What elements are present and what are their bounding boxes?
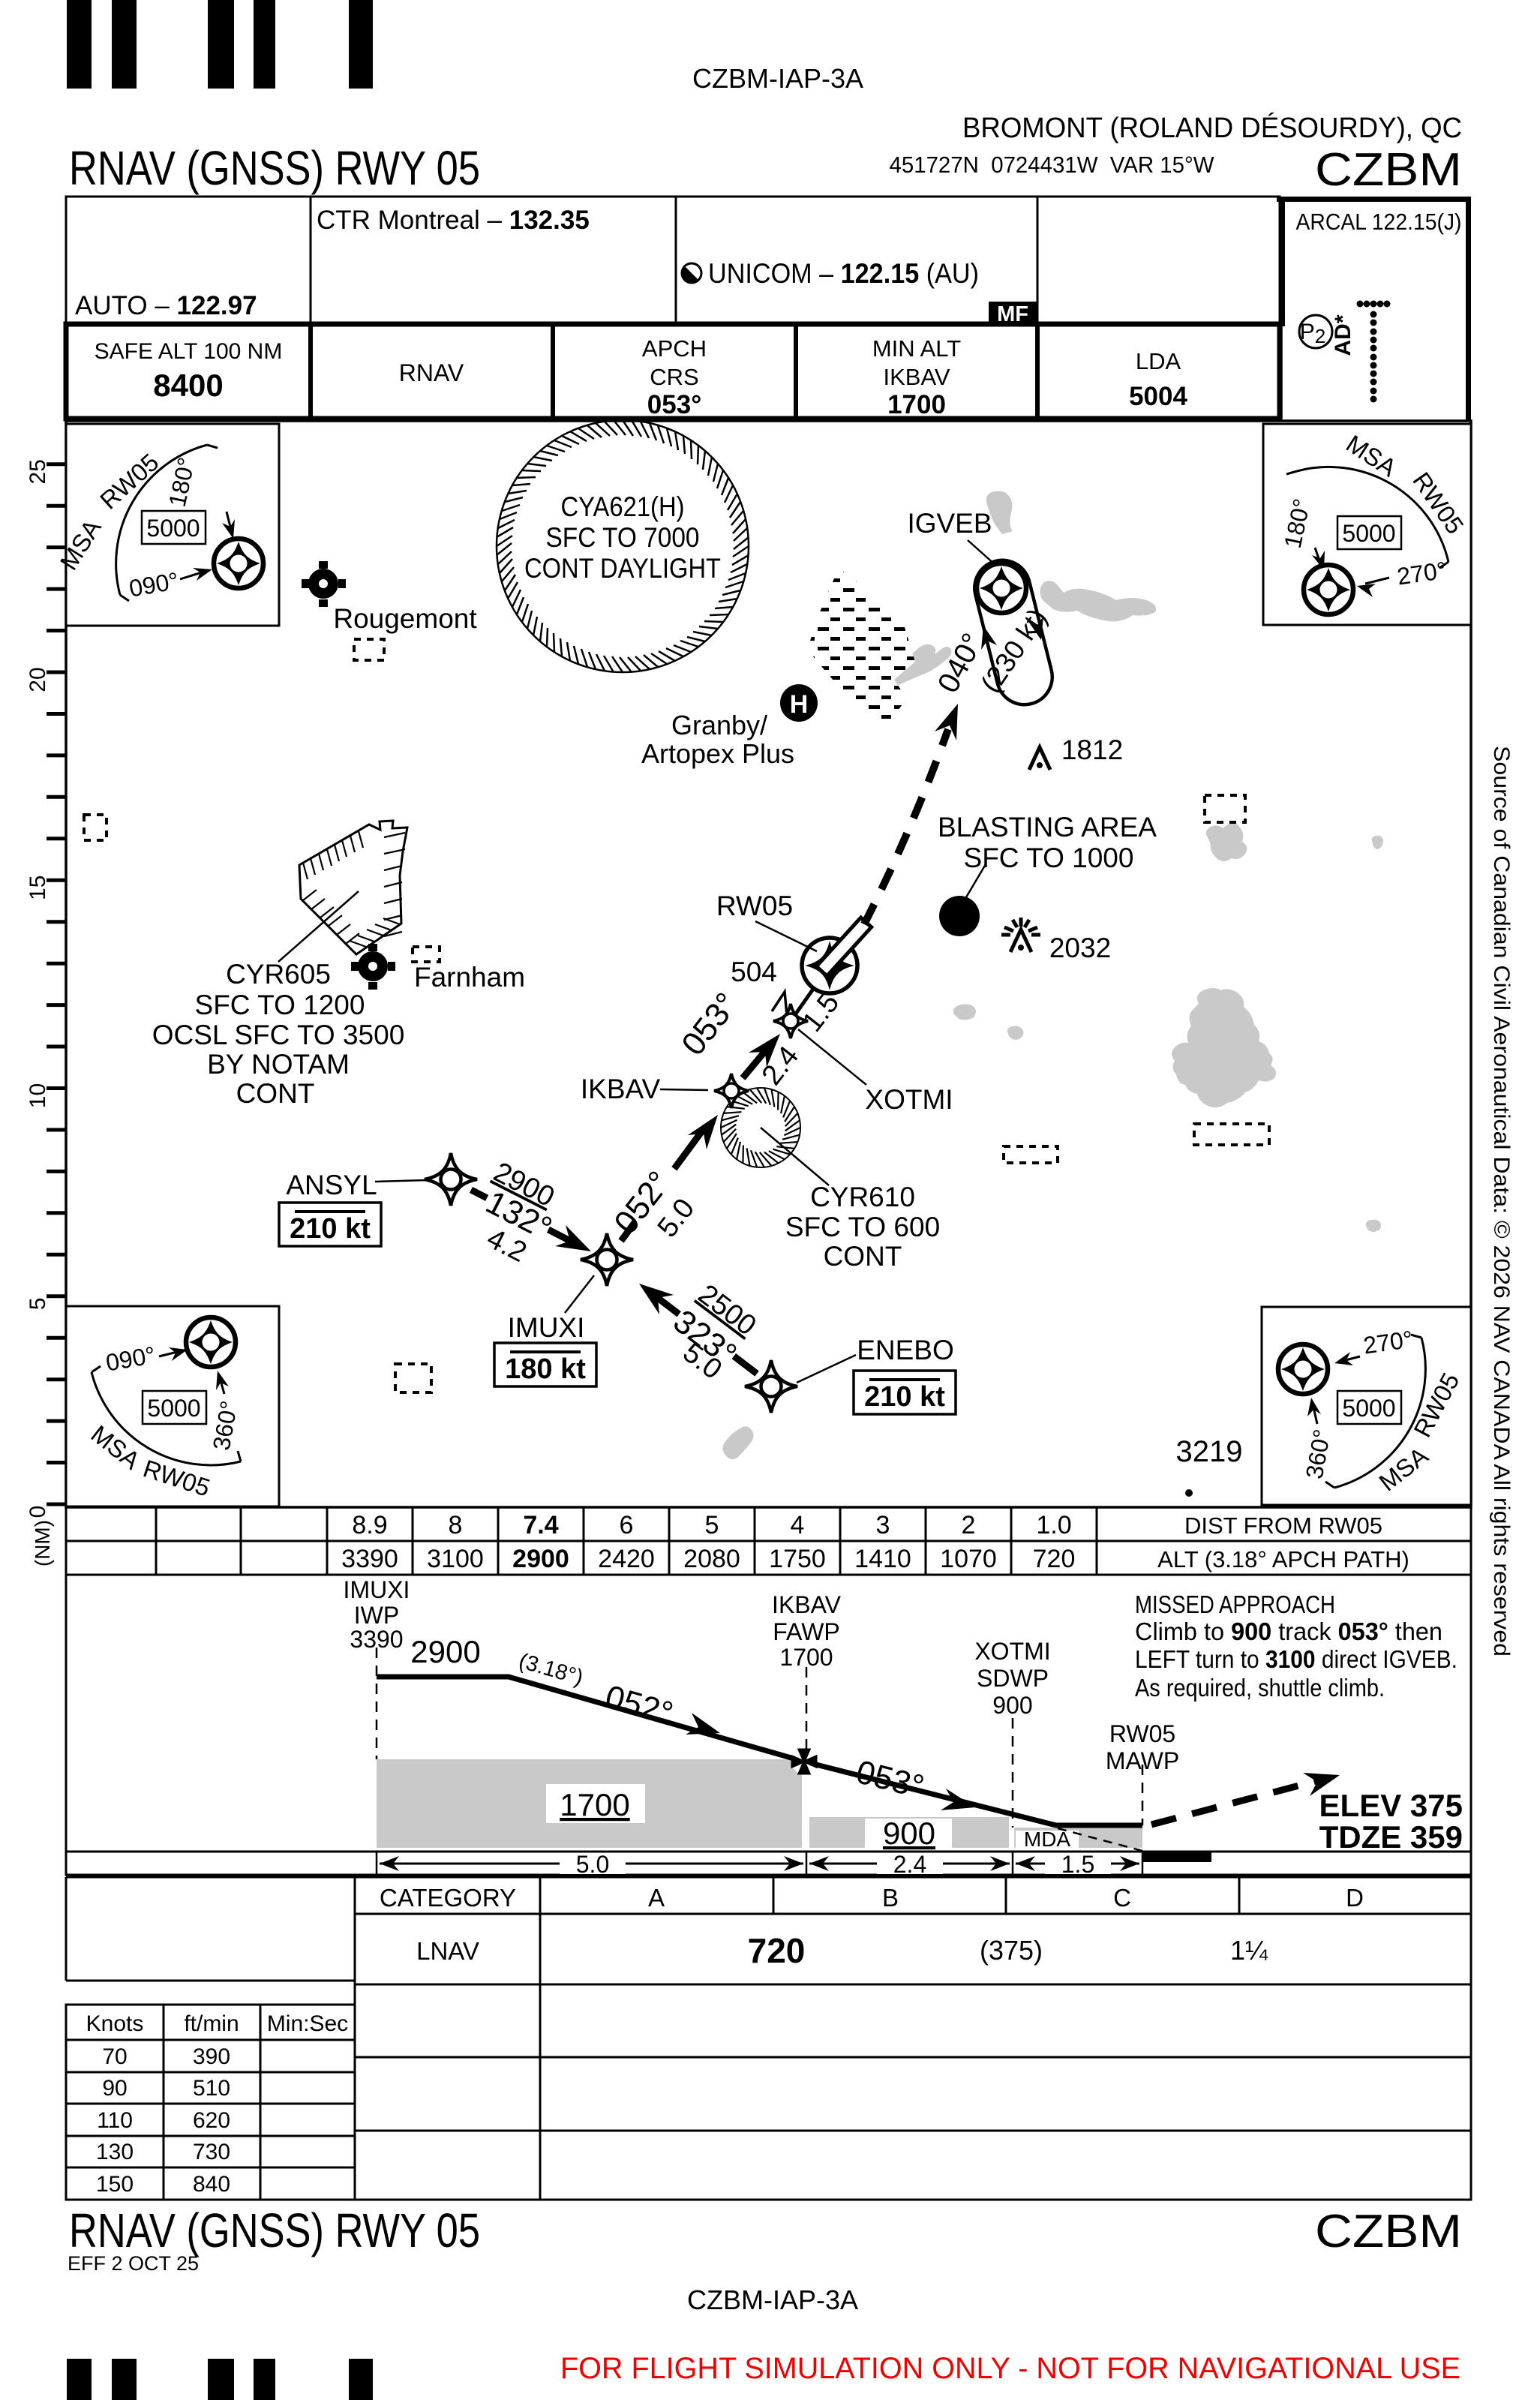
svg-text:25: 25 <box>26 459 50 484</box>
svg-text:Rougemont: Rougemont <box>333 603 477 634</box>
svg-text:DIST FROM RW05: DIST FROM RW05 <box>1184 1512 1382 1539</box>
svg-text:2900: 2900 <box>512 1545 569 1573</box>
svg-text:390: 390 <box>193 2044 230 2069</box>
svg-text:5000: 5000 <box>1342 520 1395 547</box>
svg-text:TDZE 359: TDZE 359 <box>1319 1819 1463 1855</box>
svg-text:OCSL SFC TO 3500: OCSL SFC TO 3500 <box>152 1020 405 1050</box>
svg-text:053°: 053° <box>647 390 701 419</box>
svg-text:(NM): (NM) <box>31 1520 54 1566</box>
svg-text:FOR FLIGHT SIMULATION ONLY - N: FOR FLIGHT SIMULATION ONLY - NOT FOR NAV… <box>560 2352 1460 2385</box>
svg-text:MISSED APPROACH: MISSED APPROACH <box>1135 1590 1335 1618</box>
svg-text:B: B <box>882 1884 899 1912</box>
svg-text:5.0: 5.0 <box>576 1851 609 1878</box>
svg-text:MIN ALT: MIN ALT <box>872 335 961 362</box>
svg-text:IKBAV: IKBAV <box>581 1074 661 1104</box>
svg-text:1070: 1070 <box>940 1545 997 1573</box>
svg-text:EFF 2 OCT 25: EFF 2 OCT 25 <box>68 2252 199 2275</box>
svg-text:C: C <box>1113 1884 1131 1912</box>
svg-text:IMUXI: IMUXI <box>344 1576 410 1603</box>
svg-text:3219: 3219 <box>1176 1435 1243 1468</box>
svg-text:RNAV (GNSS) RWY 05: RNAV (GNSS) RWY 05 <box>69 2203 480 2257</box>
svg-text:XOTMI: XOTMI <box>974 1638 1050 1665</box>
svg-text:720: 720 <box>748 1931 806 1970</box>
svg-text:MF: MF <box>997 302 1028 326</box>
svg-text:SFC TO 7000: SFC TO 7000 <box>546 522 700 553</box>
svg-text:CYA621(H): CYA621(H) <box>561 491 685 522</box>
svg-text:1¼: 1¼ <box>1230 1935 1268 1966</box>
svg-text:3: 3 <box>876 1511 890 1539</box>
svg-text:LDA: LDA <box>1136 348 1181 374</box>
svg-text:5004: 5004 <box>1129 382 1187 411</box>
svg-text:90: 90 <box>102 2076 127 2101</box>
svg-text:CYR605: CYR605 <box>226 959 331 990</box>
svg-text:IKBAV: IKBAV <box>772 1591 842 1618</box>
svg-text:CZBM: CZBM <box>1315 144 1462 196</box>
svg-text:A: A <box>648 1884 665 1912</box>
svg-text:210 kt: 210 kt <box>864 1381 945 1413</box>
svg-text:RNAV: RNAV <box>399 359 464 386</box>
svg-text:510: 510 <box>193 2076 230 2101</box>
svg-text:2.4: 2.4 <box>893 1851 926 1878</box>
svg-text:8: 8 <box>449 1511 463 1539</box>
svg-text:RW05: RW05 <box>716 891 793 921</box>
svg-text:BROMONT (ROLAND DÉSOURDY), QC: BROMONT (ROLAND DÉSOURDY), QC <box>962 112 1462 144</box>
svg-text:15: 15 <box>26 876 50 900</box>
svg-text:IMUXI: IMUXI <box>508 1312 585 1343</box>
svg-text:1.5: 1.5 <box>1061 1851 1094 1878</box>
svg-text:210 kt: 210 kt <box>290 1213 371 1245</box>
svg-text:BY NOTAM: BY NOTAM <box>207 1049 350 1080</box>
svg-text:AUTO – 122.97: AUTO – 122.97 <box>75 291 257 320</box>
svg-text:FAWP: FAWP <box>773 1618 839 1645</box>
svg-text:SAFE ALT 100 NM: SAFE ALT 100 NM <box>95 339 283 364</box>
svg-text:SFC TO 600: SFC TO 600 <box>785 1212 940 1242</box>
svg-text:5: 5 <box>705 1511 719 1539</box>
svg-text:Climb to 900 track 053° then: Climb to 900 track 053° then <box>1135 1618 1442 1645</box>
svg-text:70: 70 <box>102 2044 127 2069</box>
svg-text:ELEV 375: ELEV 375 <box>1319 1788 1463 1823</box>
svg-text:AD*: AD* <box>1331 314 1355 356</box>
svg-text:1.0: 1.0 <box>1036 1511 1071 1539</box>
svg-text:ARCAL 122.15(J): ARCAL 122.15(J) <box>1296 209 1462 235</box>
svg-text:2900: 2900 <box>410 1634 480 1669</box>
svg-text:900: 900 <box>883 1816 935 1851</box>
svg-text:2: 2 <box>962 1511 976 1539</box>
svg-text:150: 150 <box>96 2172 134 2197</box>
svg-text:CZBM-IAP-3A: CZBM-IAP-3A <box>692 63 863 94</box>
svg-text:ALT (3.18° APCH PATH): ALT (3.18° APCH PATH) <box>1157 1546 1409 1572</box>
svg-text:1750: 1750 <box>769 1545 826 1573</box>
svg-text:130: 130 <box>96 2140 134 2164</box>
svg-text:APCH: APCH <box>642 335 707 362</box>
svg-text:CZBM: CZBM <box>1315 2206 1462 2257</box>
svg-text:720: 720 <box>1033 1545 1076 1573</box>
svg-text:IKBAV: IKBAV <box>883 364 950 390</box>
svg-text:504: 504 <box>731 957 777 987</box>
svg-text:110: 110 <box>97 2108 133 2133</box>
svg-text:LEFT turn to 3100 direct IGVEB: LEFT turn to 3100 direct IGVEB. <box>1135 1645 1457 1673</box>
svg-text:IWP: IWP <box>354 1602 399 1629</box>
svg-text:3390: 3390 <box>341 1545 398 1573</box>
svg-text:CRS: CRS <box>650 364 698 390</box>
svg-text:CONT: CONT <box>236 1078 315 1109</box>
svg-text:451727N 0724431W VAR 15°W: 451727N 0724431W VAR 15°W <box>890 152 1215 178</box>
svg-text:ft/min: ft/min <box>184 2011 239 2036</box>
svg-text:RW05: RW05 <box>1109 1720 1175 1747</box>
svg-text:As required, shuttle climb.: As required, shuttle climb. <box>1135 1674 1385 1702</box>
svg-text:1700: 1700 <box>560 1787 629 1822</box>
svg-text:BLASTING AREA: BLASTING AREA <box>938 812 1157 843</box>
svg-text:CYR610: CYR610 <box>810 1182 915 1212</box>
svg-text:Farnham: Farnham <box>414 962 525 993</box>
svg-text:1700: 1700 <box>779 1644 833 1671</box>
svg-text:SDWP: SDWP <box>977 1665 1049 1692</box>
svg-text:180 kt: 180 kt <box>505 1353 586 1385</box>
svg-text:5000: 5000 <box>1342 1395 1395 1422</box>
svg-text:D: D <box>1346 1884 1364 1912</box>
svg-text:IGVEB: IGVEB <box>907 508 992 539</box>
svg-text:3390: 3390 <box>350 1626 403 1653</box>
svg-text:2032: 2032 <box>1049 933 1111 963</box>
svg-text:1700: 1700 <box>887 390 946 419</box>
svg-text:Granby/: Granby/ <box>671 710 767 740</box>
svg-text:5000: 5000 <box>146 515 200 542</box>
svg-text:5000: 5000 <box>147 1395 200 1422</box>
svg-text:ANSYL: ANSYL <box>286 1170 377 1200</box>
svg-text:8400: 8400 <box>153 368 223 403</box>
svg-text:SFC TO 1000: SFC TO 1000 <box>964 843 1134 873</box>
svg-text:CTR Montreal – 132.35: CTR Montreal – 132.35 <box>317 206 590 235</box>
svg-text:2420: 2420 <box>598 1545 655 1573</box>
svg-text:900: 900 <box>992 1692 1032 1719</box>
svg-text:LNAV: LNAV <box>416 1937 479 1965</box>
svg-text:CONT: CONT <box>824 1241 902 1272</box>
svg-text:1812: 1812 <box>1061 734 1123 765</box>
svg-text:730: 730 <box>193 2140 230 2164</box>
svg-text:620: 620 <box>193 2108 230 2133</box>
svg-text:RNAV (GNSS) RWY 05: RNAV (GNSS) RWY 05 <box>69 141 480 195</box>
svg-text:0: 0 <box>26 1506 50 1518</box>
svg-text:CATEGORY: CATEGORY <box>380 1884 516 1912</box>
svg-text:6: 6 <box>620 1511 634 1539</box>
svg-text:20: 20 <box>26 667 50 692</box>
svg-text:XOTMI: XOTMI <box>865 1084 953 1115</box>
svg-text:840: 840 <box>193 2172 230 2197</box>
svg-text:4: 4 <box>791 1511 805 1539</box>
svg-text:2080: 2080 <box>683 1545 740 1573</box>
svg-text:H: H <box>790 690 809 719</box>
svg-text:7.4: 7.4 <box>523 1511 558 1539</box>
svg-text:MDA: MDA <box>1024 1828 1071 1851</box>
svg-text:5: 5 <box>26 1297 50 1310</box>
svg-text:SFC TO 1200: SFC TO 1200 <box>195 990 365 1020</box>
svg-text:MAWP: MAWP <box>1106 1747 1179 1774</box>
svg-text:Artopex Plus: Artopex Plus <box>641 738 794 769</box>
svg-text:Source of Canadian Civil Aeron: Source of Canadian Civil Aeronautical Da… <box>1489 746 1514 1657</box>
svg-text:Knots: Knots <box>86 2011 144 2036</box>
svg-text:10: 10 <box>26 1083 50 1108</box>
svg-text:3100: 3100 <box>427 1545 484 1573</box>
svg-text:CONT DAYLIGHT: CONT DAYLIGHT <box>524 553 721 584</box>
svg-text:8.9: 8.9 <box>352 1511 387 1539</box>
svg-text:(375): (375) <box>980 1935 1043 1966</box>
svg-text:Min:Sec: Min:Sec <box>267 2011 348 2036</box>
svg-text:CZBM-IAP-3A: CZBM-IAP-3A <box>687 2284 858 2315</box>
svg-text:UNICOM – 122.15 (AU): UNICOM – 122.15 (AU) <box>708 258 979 289</box>
svg-text:ENEBO: ENEBO <box>857 1335 954 1365</box>
svg-text:1410: 1410 <box>854 1545 911 1573</box>
